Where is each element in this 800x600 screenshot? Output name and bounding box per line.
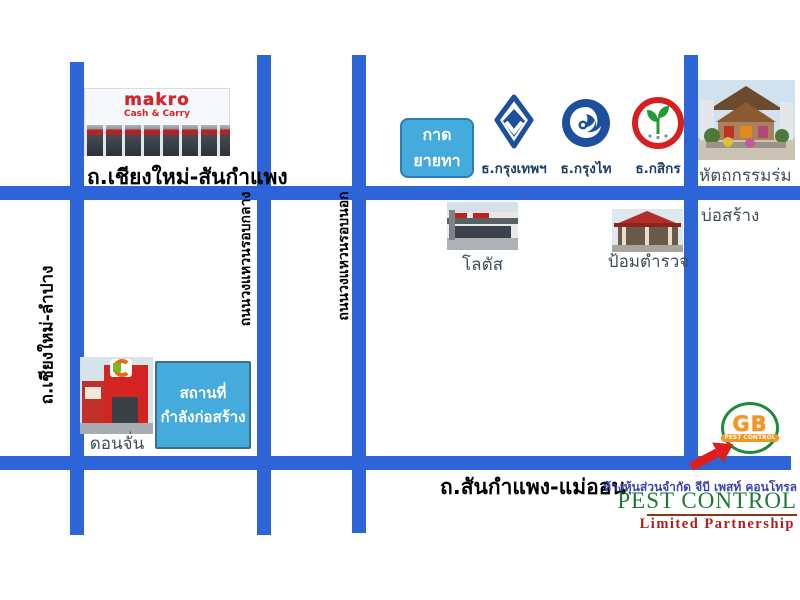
company-type-label: Limited Partnership — [640, 516, 795, 533]
bottom-road-label: ถ.สันกำแพง-แม่ออน — [440, 471, 626, 504]
police-box-label: ป้อมตำรวจ — [606, 248, 691, 275]
lotus-photo — [447, 202, 518, 250]
location-arrow-icon — [686, 437, 738, 477]
construction-line1: สถานที่ — [157, 381, 249, 405]
bank-kasikorn-label: ธ.กสิกร — [635, 157, 680, 179]
umbrella-handicraft-label: หัตถกรรมร่ม — [699, 162, 792, 189]
lotus-label: โลตัส — [447, 251, 518, 278]
road-sankamphaeng-maeon — [0, 456, 791, 470]
ring-outer-road-label: ถนนวงแหวนรอบนอก — [333, 191, 355, 320]
bank-kasikorn: ธ.กสิกร — [622, 94, 694, 179]
makro-logo-text: makro — [85, 91, 229, 109]
bigc-photo — [80, 357, 153, 434]
umbrella-handicraft-photo — [698, 80, 795, 160]
map-canvas: ถ.เชียงใหม่-สันกำแพง ถ.สันกำแพง-แม่ออน ถ… — [0, 0, 800, 600]
bangkok-bank-logo-icon — [493, 94, 535, 154]
gb-logo-letters: GB — [732, 414, 767, 434]
kad-yai-tha-line1: กาด — [402, 122, 472, 148]
donchan-label: ดอนจั่น — [82, 430, 152, 457]
company-english-name: PEST CONTROL — [617, 488, 797, 514]
bank-bangkok-label: ธ.กรุงเทพฯ — [481, 157, 546, 179]
kad-yai-tha-line2: ยายทา — [402, 148, 472, 174]
construction-line2: กำลังก่อสร้าง — [157, 405, 249, 429]
kasikorn-bank-logo-icon — [630, 94, 686, 154]
left-road-label: ถ.เชียงใหม่-ลำปาง — [34, 266, 61, 405]
makro-sign: makro Cash & Carry — [84, 88, 230, 125]
police-box-photo — [612, 209, 683, 252]
makro-storefront — [84, 125, 230, 156]
top-road-label: ถ.เชียงใหม่-สันกำแพง — [87, 161, 288, 194]
makro-photo: makro Cash & Carry — [84, 88, 230, 156]
kad-yai-tha-box: กาด ยายทา — [400, 118, 474, 178]
ring-middle-road-label: ถนนวงแหวนรอบกลาง — [235, 192, 257, 327]
bosang-label: บ่อสร้าง — [701, 202, 759, 229]
bank-krungthai: ธ.กรุงไท — [550, 94, 622, 179]
bank-bangkok: ธ.กรุงเทพฯ — [478, 94, 550, 179]
construction-site-box: สถานที่ กำลังก่อสร้าง — [155, 361, 251, 449]
bank-krungthai-label: ธ.กรุงไท — [560, 157, 611, 179]
banks-row: ธ.กรุงเทพฯ ธ.กรุงไท — [478, 94, 694, 179]
makro-logo-subtext: Cash & Carry — [85, 109, 229, 119]
krungthai-bank-logo-icon — [559, 94, 613, 154]
